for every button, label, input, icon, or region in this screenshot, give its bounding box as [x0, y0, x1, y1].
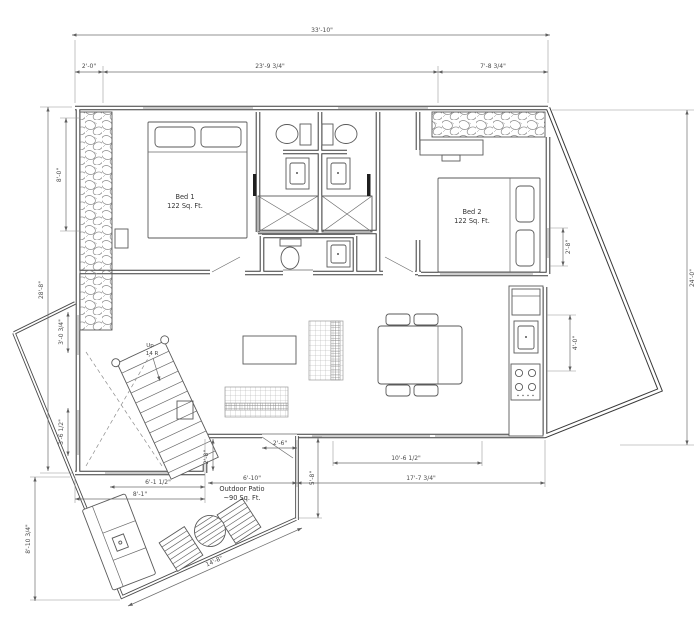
dim-patio-left: 8'-10 3/4" [25, 524, 32, 554]
dim-stone-height: 8'-0" [56, 168, 63, 182]
patio-sofa [82, 494, 156, 591]
toilet-tank [322, 124, 333, 145]
bed1-area: 122 Sq. Ft. [167, 202, 203, 210]
dim-kitchen-window: 10'-6 1/2" [391, 455, 421, 462]
floor-plan-drawing: Up 14 R Bed 1 122 Sq. Ft. Bed 2 122 Sq. … [0, 0, 700, 617]
living-dining-furniture [225, 314, 462, 417]
dim-win-lower: 3'-6 1/2" [58, 419, 65, 445]
dim-overall-left: 28'-8" [38, 281, 45, 299]
dim-patio-door: 2'-6" [273, 440, 287, 447]
toilet-bowl [281, 247, 299, 269]
dim-stair-room-width: 8'-1" [133, 491, 147, 498]
bed2-furniture [420, 140, 540, 272]
dim-overall-width: 33'-10" [311, 27, 333, 34]
bed2-label: Bed 2 [462, 208, 481, 216]
kitchen-counter [509, 286, 543, 436]
dining-chair [386, 385, 410, 396]
dining-table [378, 326, 462, 384]
kitchen-fixtures [509, 286, 543, 436]
dim-overall-right: 24'-0" [689, 269, 696, 287]
bed2-bed [438, 178, 540, 272]
bed1-nightstand [115, 229, 128, 248]
patio-area: ~90 Sq. Ft. [223, 494, 260, 502]
dim-win-upper: 3'-0 3/4" [58, 319, 65, 345]
dining-chair [386, 314, 410, 325]
bed1-bed [148, 122, 247, 238]
dim-patio-top: 6'-10" [243, 475, 261, 482]
floor-grate [225, 387, 288, 417]
dim-kitchen-wall: 4'-0" [572, 336, 579, 350]
dining-chair [414, 385, 438, 396]
bed1-label: Bed 1 [175, 193, 194, 201]
stair-up-label: Up [146, 343, 154, 349]
floor-plan-page: Up 14 R Bed 1 122 Sq. Ft. Bed 2 122 Sq. … [0, 0, 700, 617]
dim-patio-side: 5'-8" [309, 471, 316, 485]
toilet-tank [300, 124, 311, 145]
dim-living-width: 17'-7 3/4" [406, 475, 436, 482]
bed2-dresser [420, 140, 483, 155]
dim-seg-right: 7'-8 3/4" [480, 63, 506, 70]
dim-seg-left: 2'-0" [82, 63, 96, 70]
dim-bed2-wall: 2'-8" [565, 240, 572, 254]
dim-seg-mid: 23'-9 3/4" [255, 63, 285, 70]
stair-risers-label: 14 R [146, 351, 159, 357]
toilet-bowl [276, 125, 298, 144]
toilet-tank [280, 239, 301, 246]
dining-chair [414, 314, 438, 325]
patio-label: Outdoor Patio [219, 485, 264, 493]
dim-stair-width: 6'-1 1/2" [145, 479, 171, 486]
toilet-bowl [335, 125, 357, 144]
coffee-table [243, 336, 296, 364]
dim-notch: 2'-8" [203, 450, 210, 464]
bed2-area: 122 Sq. Ft. [454, 217, 490, 225]
